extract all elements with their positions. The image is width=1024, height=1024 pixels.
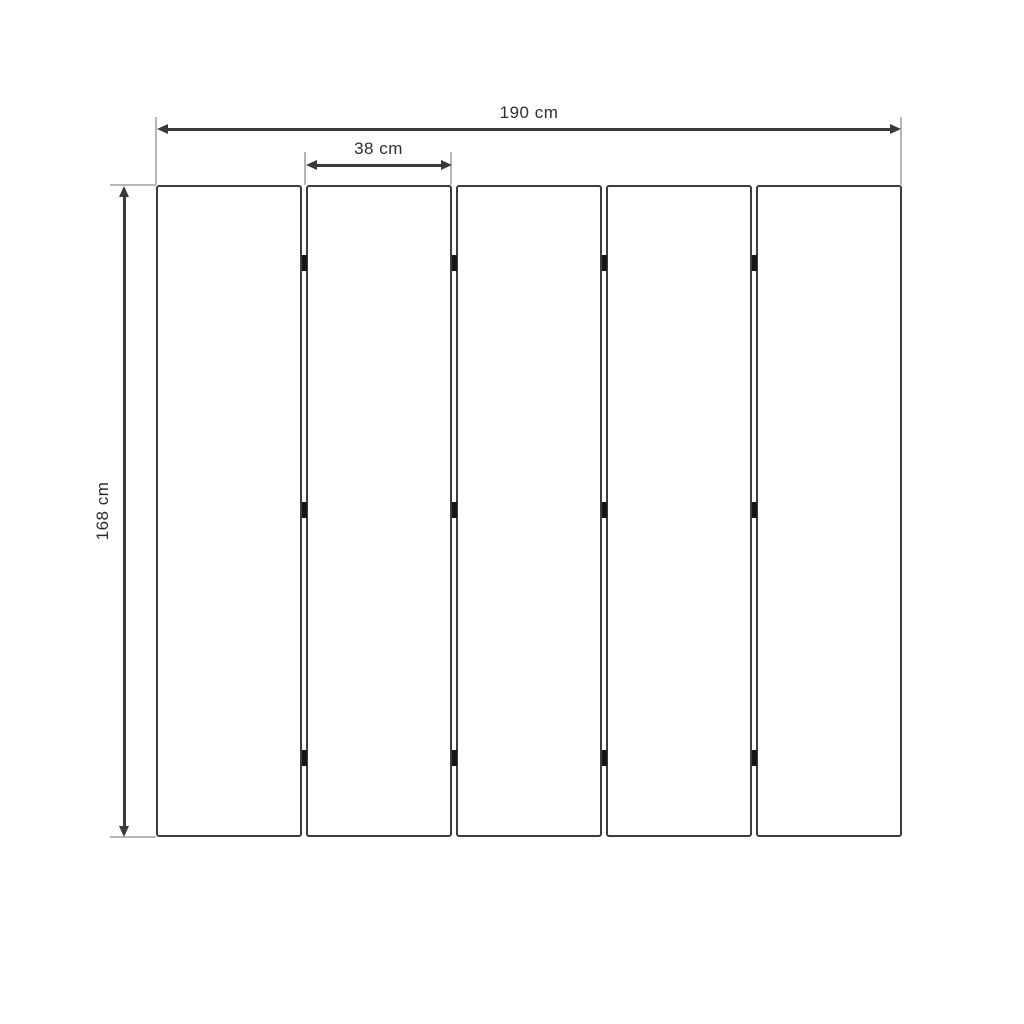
panel-1 <box>156 185 302 837</box>
hinge-mark <box>602 255 607 271</box>
hinge-mark <box>752 750 757 766</box>
hinge-mark <box>302 255 307 271</box>
hinge-mark <box>452 255 457 271</box>
extension-line-height-top <box>110 184 156 186</box>
hinge-mark <box>602 750 607 766</box>
arrowhead-right-icon <box>890 124 901 134</box>
hinge-mark <box>452 750 457 766</box>
hinge-mark <box>602 502 607 518</box>
height-dimension-line <box>123 195 126 827</box>
hinge-mark <box>302 750 307 766</box>
hinge-mark <box>452 502 457 518</box>
panel-2 <box>306 185 452 837</box>
panel-width-dimension-label: 38 cm <box>305 139 452 159</box>
total-width-dimension-line <box>166 128 892 131</box>
extension-line-height-bottom <box>110 836 156 838</box>
hinge-mark <box>752 255 757 271</box>
dimension-diagram: 190 cm 38 cm 168 cm <box>0 0 1024 1024</box>
arrowhead-down-icon <box>119 826 129 837</box>
arrowhead-right-icon <box>441 160 452 170</box>
panel-5 <box>756 185 902 837</box>
hinge-mark <box>302 502 307 518</box>
height-dimension-label: 168 cm <box>93 482 113 541</box>
total-width-dimension-label: 190 cm <box>157 103 901 123</box>
hinge-mark <box>752 502 757 518</box>
panel-3 <box>456 185 602 837</box>
panel-width-dimension-line <box>315 164 442 167</box>
panel-4 <box>606 185 752 837</box>
